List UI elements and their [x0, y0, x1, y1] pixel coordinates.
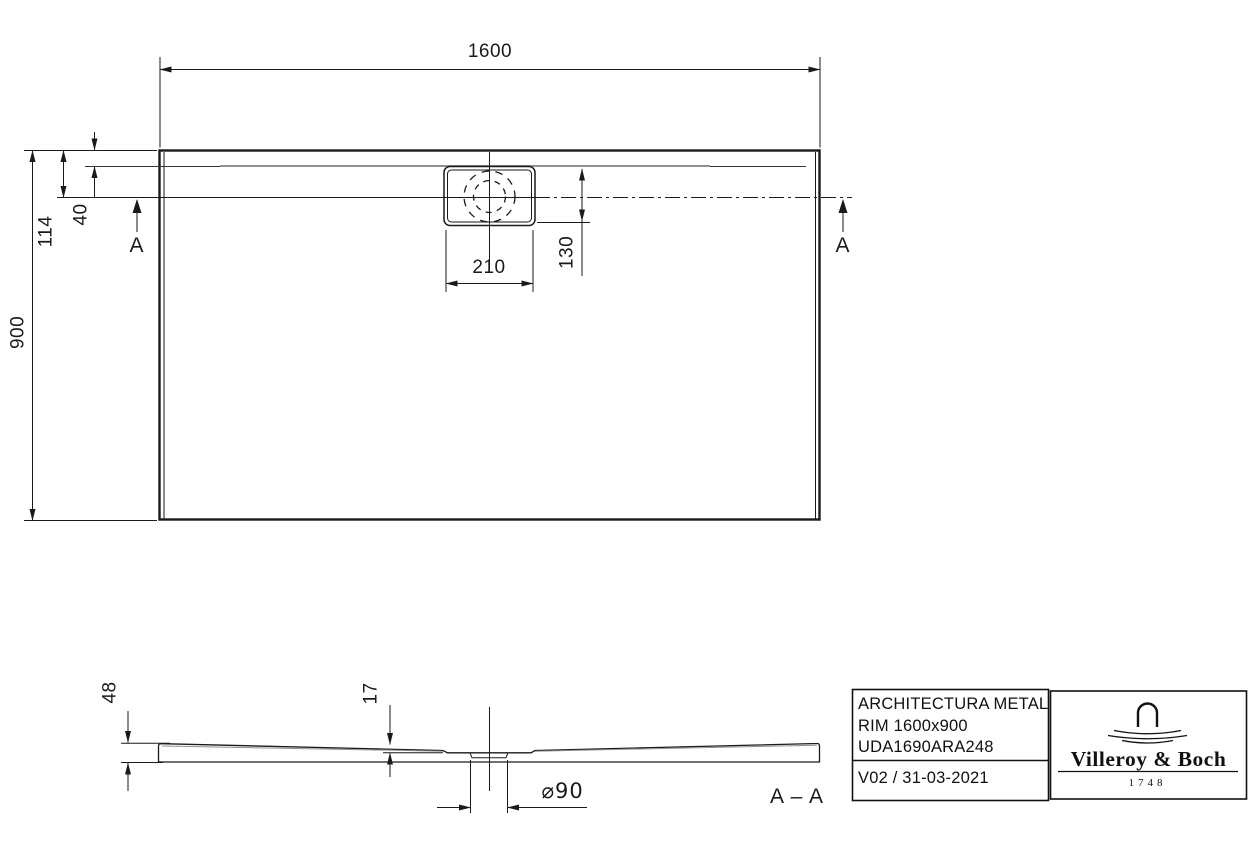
section-marker-left-label: A — [107, 234, 167, 257]
technical-drawing-sheet: 1600 900 114 40 130 210 A A 48 17 ⌀90 A … — [0, 0, 1260, 866]
dim-width-label: 1600 — [450, 42, 530, 63]
drawing-linework — [0, 0, 1260, 866]
dim-1600-lines — [160, 57, 820, 148]
brand-year: 1748 — [1097, 777, 1198, 789]
brand-name: Villeroy & Boch — [1052, 747, 1245, 772]
dim-edge-to-center-label: 114 — [37, 191, 58, 271]
dim-tray-height-label: 48 — [101, 652, 122, 732]
vb-logo-icon — [1108, 704, 1187, 743]
section-slope-right — [535, 745, 817, 751]
dim-drain-box-width-label: 210 — [449, 258, 529, 279]
product-size: RIM 1600x900 — [858, 717, 968, 736]
water-ripple-1 — [1114, 731, 1181, 734]
faucet-icon — [1138, 704, 1157, 727]
dim-48-lines — [121, 711, 170, 791]
product-name: ARCHITECTURA METAL — [858, 695, 1048, 714]
top-view-linework — [24, 57, 852, 521]
dim-height-label: 900 — [9, 292, 30, 372]
water-ripple-2 — [1108, 736, 1187, 739]
dim-drain-diameter-label: ⌀90 — [520, 780, 605, 803]
dim-drain-offset-label: 130 — [558, 212, 579, 292]
section-view-linework — [121, 705, 820, 813]
section-marker-right-label: A — [813, 234, 873, 257]
dim-rim-label: 40 — [72, 174, 93, 254]
section-view-label: A – A — [752, 785, 842, 808]
water-ripple-3 — [1122, 741, 1173, 744]
product-article: UDA1690ARA248 — [858, 738, 994, 757]
drawing-version: V02 / 31-03-2021 — [858, 769, 989, 788]
dim-17-lines — [383, 705, 443, 777]
dim-drain-depth-label: 17 — [362, 653, 383, 733]
